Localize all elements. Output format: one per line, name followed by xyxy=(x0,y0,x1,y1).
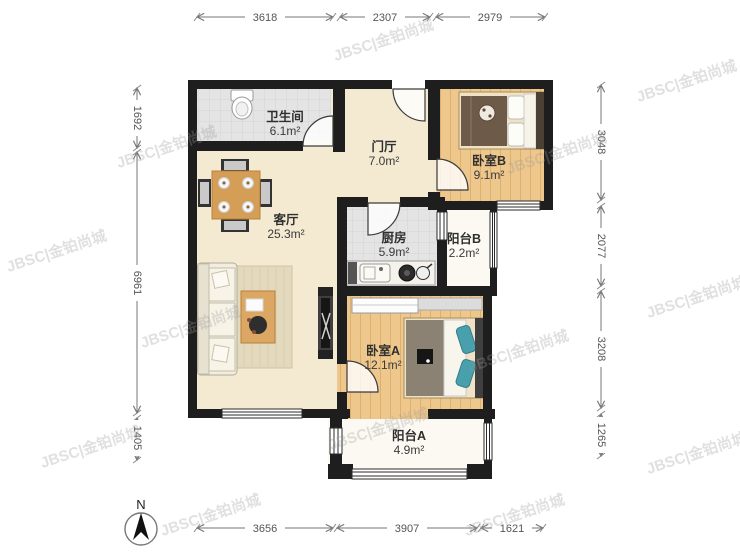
north-label: N xyxy=(136,497,145,512)
room-label-bedroom-a-name: 卧室A xyxy=(366,343,400,358)
room-label-bathroom-name: 卫生间 xyxy=(266,109,304,124)
dim-bottom-1: 3656 xyxy=(253,523,277,535)
room-label-balcony-a-area: 4.9m² xyxy=(394,443,425,457)
coffee-table xyxy=(241,291,275,343)
dim-bottom-2: 3907 xyxy=(395,523,419,535)
watermark-text: JBSC|金铂尚城 xyxy=(634,57,739,106)
room-label-foyer-area: 7.0m² xyxy=(369,154,400,168)
watermark-text: JBSC|金铂尚城 xyxy=(38,423,143,472)
toilet xyxy=(231,90,253,119)
dim-top-2: 2307 xyxy=(373,12,397,24)
dim-right-4: 1265 xyxy=(595,423,607,447)
floorplan-page: 卫生间 6.1m² 门厅 7.0m² 卧室B 9.1m² 客厅 25.3m² 厨… xyxy=(0,0,740,555)
dim-top-1: 3618 xyxy=(253,12,277,24)
watermark-text: JBSC|金铂尚城 xyxy=(644,429,740,478)
room-label-balcony-b-area: 2.2m² xyxy=(449,246,480,260)
room-label-kitchen-area: 5.9m² xyxy=(379,245,410,259)
room-label-bedroom-a-area: 12.1m² xyxy=(364,358,401,372)
room-label-bathroom-area: 6.1m² xyxy=(270,124,301,138)
watermark-text: JBSC|金铂尚城 xyxy=(644,273,740,322)
room-label-foyer-name: 门厅 xyxy=(371,139,397,154)
watermark-text: JBSC|金铂尚城 xyxy=(4,227,109,276)
room-label-living-name: 客厅 xyxy=(272,212,299,227)
room-label-bedroom-b-name: 卧室B xyxy=(472,153,506,168)
dim-right-3: 3208 xyxy=(595,337,607,361)
dim-left-2: 6961 xyxy=(131,271,143,295)
dim-left-1: 1692 xyxy=(131,106,143,130)
north-compass: N xyxy=(125,497,157,545)
room-label-bedroom-b-area: 9.1m² xyxy=(474,168,505,182)
floorplan-svg: 卫生间 6.1m² 门厅 7.0m² 卧室B 9.1m² 客厅 25.3m² 厨… xyxy=(0,0,740,555)
bed-bedroom-b xyxy=(459,92,545,149)
room-label-balcony-b-name: 阳台B xyxy=(447,231,481,246)
dim-top-3: 2979 xyxy=(478,12,502,24)
dim-right-2: 2077 xyxy=(595,234,607,258)
tv-console xyxy=(318,287,333,359)
room-label-kitchen-name: 厨房 xyxy=(381,230,406,245)
room-label-living-area: 25.3m² xyxy=(267,227,304,241)
kitchen-counter xyxy=(347,261,435,285)
